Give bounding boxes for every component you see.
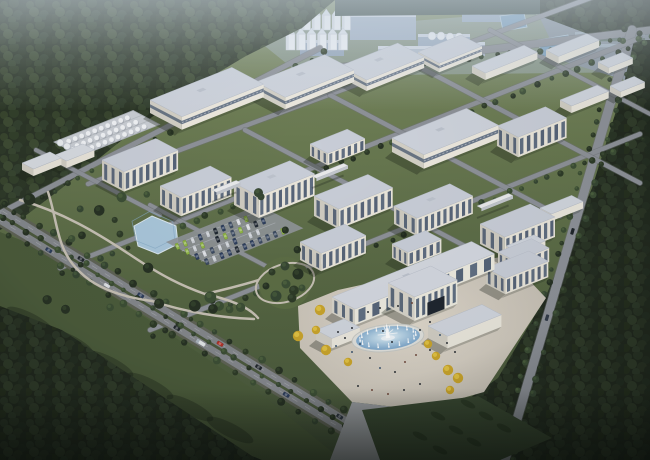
vignette [0, 0, 650, 460]
industrial-park-scene [0, 0, 650, 460]
aerial-rendering [0, 0, 650, 460]
